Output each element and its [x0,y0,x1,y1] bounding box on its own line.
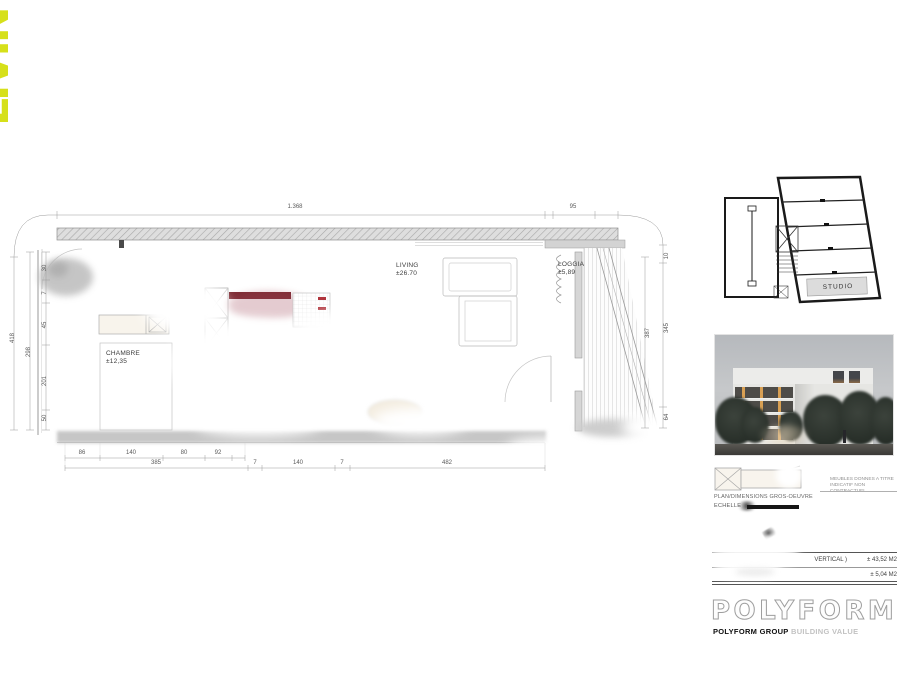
key-plan [712,168,897,310]
dim-label: 50 [42,415,48,422]
dim-label: 7 [42,291,48,294]
room-label-chambre: CHAMBRE ±12,35 [106,350,140,367]
surface-label: VERTICAL ) [814,557,847,563]
dim-label: 418 [10,333,16,343]
person-silhouette [843,430,846,443]
dim-label: 1.368 [287,204,302,210]
dim-label: 482 [442,460,452,466]
room-name: LIVING [396,262,419,270]
polyform-tagline: BUILDING VALUE [791,627,858,636]
dim-label: 298 [26,347,32,357]
livin-logo: LIVIN [14,10,126,126]
room-label-living: LIVING ±26.70 [396,262,419,279]
window [833,371,844,383]
tree [871,397,894,445]
polyform-group-line: POLYFORM GROUP BUILDING VALUE [713,627,858,636]
dim-label: 387 [645,328,651,338]
dim-label: 92 [215,450,222,456]
surface-value: ± 43,52 M2 [857,557,897,563]
room-area: ±26.70 [396,270,419,278]
drawing-sheet: LIVIN [0,0,900,675]
dim-label: 7 [253,460,256,466]
dim-label: 7 [340,460,343,466]
keyplan-studio-label: STUDIO [823,283,854,291]
balcony-strip [735,387,793,399]
dim-label: 95 [570,204,577,210]
white-smudge [760,534,820,550]
room-label-loggia: LOGGIA ±5,89 [558,261,584,278]
legend-caption: PLAN/DIMENSIONS GROS-OEUVRE [714,494,813,500]
dim-label: 45 [42,322,48,329]
building-rendering [714,334,894,456]
room-name: CHAMBRE [106,350,140,358]
divider-rule [820,491,897,492]
dim-label: 86 [79,450,86,456]
polyform-group-label: POLYFORM GROUP [713,627,789,636]
dim-label: 80 [181,450,188,456]
note-line: INDICATIF NON CONTRACTUEL [830,483,896,495]
surface-value: ± 5,04 M2 [857,572,897,578]
dim-label: 140 [126,450,136,456]
room-area: ±5,89 [558,269,584,277]
dim-label: 10 [664,253,670,260]
dim-label: 140 [293,460,303,466]
room-area: ±12,35 [106,358,140,366]
note-line: MEUBLES DONNES A TITRE [830,477,896,483]
furniture-legend-symbol [713,463,808,495]
dim-label: 385 [151,460,161,466]
window [849,371,860,383]
dim-label: 30 [42,265,48,272]
gray-smudge [735,568,775,576]
floor-plan-drawing [0,195,690,495]
polyform-wordmark: POLYFORM [711,596,897,626]
dim-label: 64 [664,414,670,421]
dim-label: 345 [664,323,670,333]
ground [715,444,894,455]
scale-bar [747,505,799,509]
room-name: LOGGIA [558,261,584,269]
dim-label: 201 [42,376,48,386]
livin-logo-text: LIVIN [0,9,16,126]
